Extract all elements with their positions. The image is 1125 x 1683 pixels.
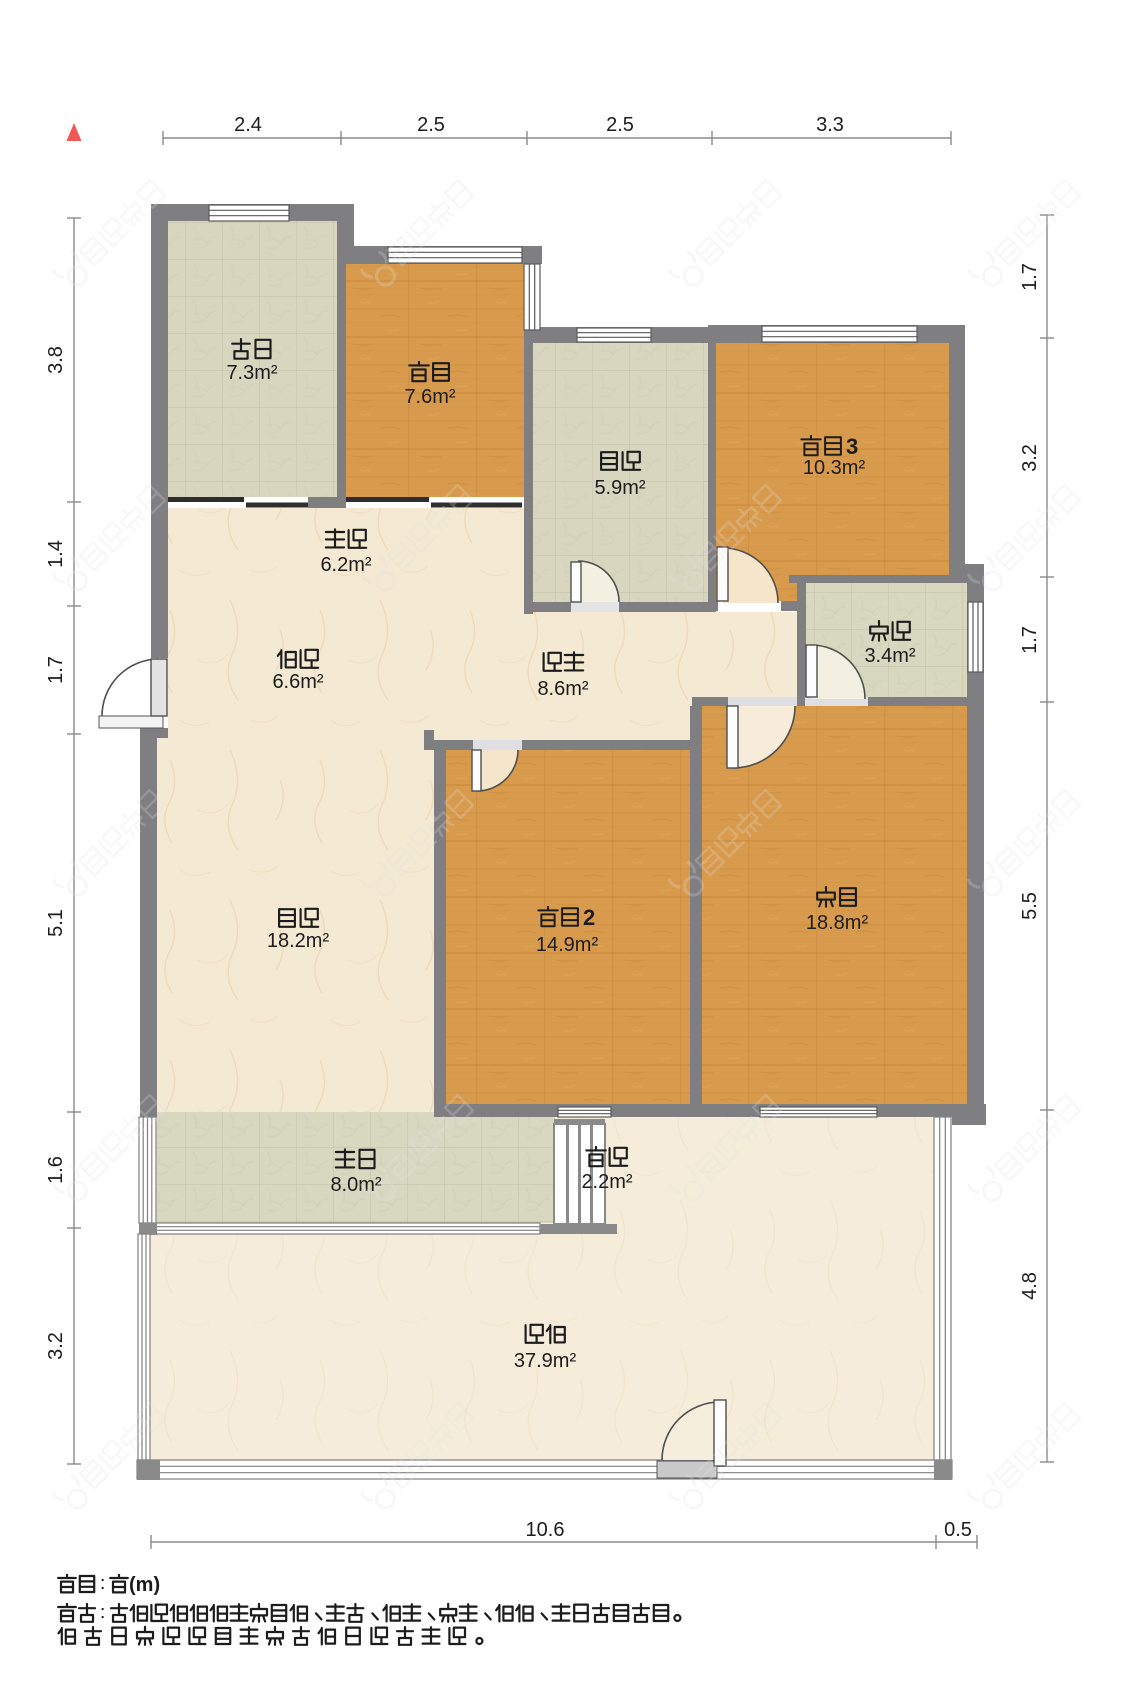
svg-text:5.1: 5.1: [45, 909, 67, 937]
svg-text:3.3: 3.3: [816, 114, 844, 136]
svg-text:8.6m²: 8.6m²: [537, 678, 588, 700]
svg-text:(m): (m): [129, 1574, 160, 1596]
svg-text:7.3m²: 7.3m²: [226, 362, 277, 384]
svg-text:6.6m²: 6.6m²: [272, 671, 323, 693]
svg-text:8.0m²: 8.0m²: [330, 1174, 381, 1196]
svg-text:3.8: 3.8: [45, 346, 67, 374]
svg-text:2.5: 2.5: [417, 114, 445, 136]
svg-text:5.5: 5.5: [1019, 892, 1041, 920]
svg-text:1.7: 1.7: [1019, 263, 1041, 291]
svg-text:1.7: 1.7: [45, 656, 67, 684]
svg-text:2: 2: [583, 905, 595, 930]
svg-text:7.6m²: 7.6m²: [404, 386, 455, 408]
svg-text:5.9m²: 5.9m²: [594, 477, 645, 499]
svg-text:0.5: 0.5: [944, 1519, 972, 1541]
svg-text:10.3m²: 10.3m²: [803, 457, 866, 479]
svg-text:1.7: 1.7: [1019, 626, 1041, 654]
svg-text:37.9m²: 37.9m²: [514, 1350, 577, 1372]
svg-text:2.4: 2.4: [234, 114, 262, 136]
svg-text:4.8: 4.8: [1019, 1272, 1041, 1300]
svg-text:14.9m²: 14.9m²: [536, 934, 599, 956]
svg-text:10.6: 10.6: [526, 1519, 565, 1541]
svg-text:2.5: 2.5: [606, 114, 634, 136]
svg-text:18.2m²: 18.2m²: [267, 930, 330, 952]
svg-text:18.8m²: 18.8m²: [806, 912, 869, 934]
svg-text:3.4m²: 3.4m²: [864, 645, 915, 667]
svg-text:3: 3: [846, 434, 858, 459]
svg-text:1.6: 1.6: [45, 1156, 67, 1184]
svg-text:1.4: 1.4: [45, 540, 67, 568]
svg-text:3.2: 3.2: [1019, 444, 1041, 472]
svg-text:3.2: 3.2: [45, 1332, 67, 1360]
svg-text:6.2m²: 6.2m²: [320, 554, 371, 576]
svg-text:2.2m²: 2.2m²: [581, 1171, 632, 1193]
